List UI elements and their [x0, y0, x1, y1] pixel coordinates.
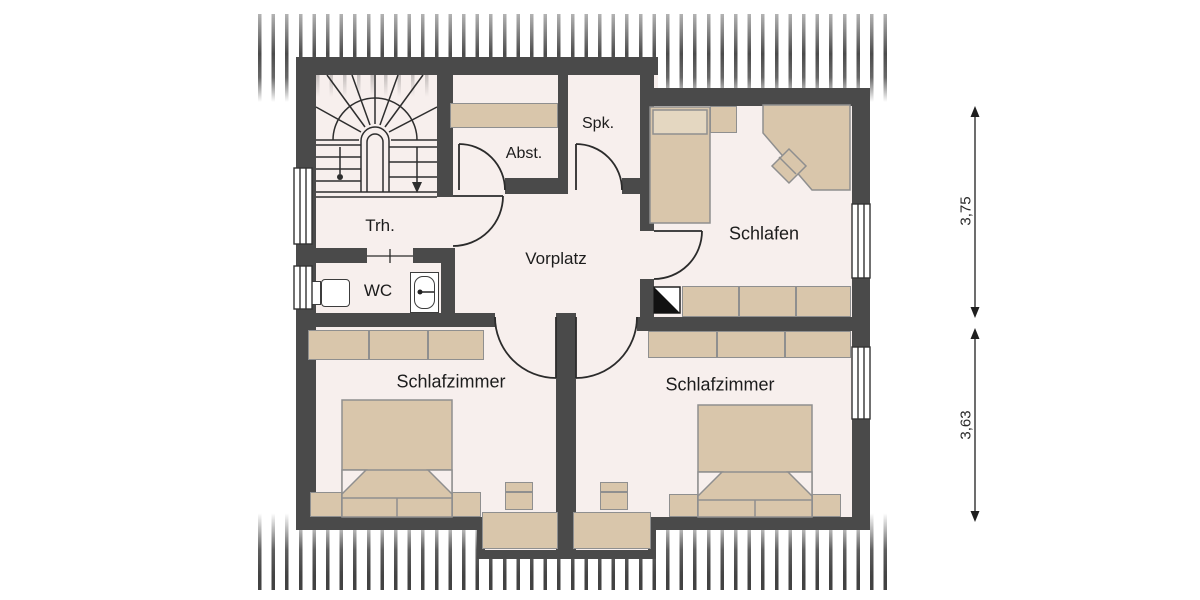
- dormer-desk: [573, 512, 651, 549]
- wall-exterior-top-left: [296, 57, 658, 75]
- room-label-schlafzimmer-left: Schlafzimmer: [396, 372, 505, 393]
- wall-exterior-top-right: [640, 88, 870, 106]
- dimension-arrows: [971, 106, 980, 522]
- roof-overhang-stair: [316, 75, 437, 97]
- desk-chair: [505, 482, 533, 510]
- room-label-abst: Abst.: [506, 145, 542, 163]
- room-label-wc: WC: [364, 281, 392, 301]
- wall-spk-stub: [622, 178, 642, 194]
- room-label-schlafzimmer-right: Schlafzimmer: [665, 375, 774, 396]
- dormer-desk: [482, 512, 558, 549]
- wall-mid-right: [637, 317, 870, 331]
- wall-exterior-right: [852, 88, 870, 530]
- cabinet-divider: [738, 287, 740, 316]
- wardrobe-right-room: [648, 331, 851, 358]
- arrowhead: [971, 307, 980, 318]
- arrowhead: [971, 511, 980, 522]
- wall-wc-top-left: [296, 248, 367, 263]
- room-label-spk: Spk.: [582, 115, 614, 133]
- wall-abst-spk: [558, 70, 568, 190]
- nightstand: [812, 494, 841, 517]
- chair-back-line: [601, 491, 627, 493]
- desk-chair: [600, 482, 628, 510]
- wall-vorplatz-schlafen-upper: [640, 88, 654, 231]
- room-label-trh: Trh.: [365, 216, 395, 236]
- room-label-vorplatz: Vorplatz: [525, 249, 586, 269]
- abst-shelf: [450, 103, 558, 128]
- nightstand: [669, 494, 698, 517]
- toilet-bowl: [321, 279, 350, 307]
- arrowhead: [971, 328, 980, 339]
- schlafen-cabinet: [682, 286, 851, 317]
- arrowhead: [971, 106, 980, 117]
- dimension-label-lower: 3,63: [958, 410, 975, 439]
- nightstand: [310, 492, 342, 517]
- schlafen-side-table: [710, 106, 737, 133]
- room-label-schlafen: Schlafen: [729, 224, 799, 245]
- wardrobe-divider: [716, 332, 718, 357]
- wall-abst-bottom: [505, 178, 568, 194]
- cabinet-divider: [795, 287, 797, 316]
- nightstand: [452, 492, 481, 517]
- wall-exterior-bottom-left: [296, 517, 485, 530]
- dimension-label-upper: 3,75: [958, 196, 975, 225]
- chair-back-line: [506, 491, 532, 493]
- wardrobe-divider: [368, 331, 370, 359]
- toilet-tank: [309, 281, 321, 305]
- wardrobe-divider: [427, 331, 429, 359]
- wardrobe-divider: [784, 332, 786, 357]
- wall-exterior-bottom-right: [648, 517, 870, 530]
- washbasin-bowl: [414, 276, 435, 309]
- wardrobe-left-room: [308, 330, 484, 360]
- floor-plan-canvas: Trh. WC Abst. Spk. Vorplatz Schlafen Sch…: [0, 0, 1200, 600]
- wall-mid-left: [296, 313, 495, 327]
